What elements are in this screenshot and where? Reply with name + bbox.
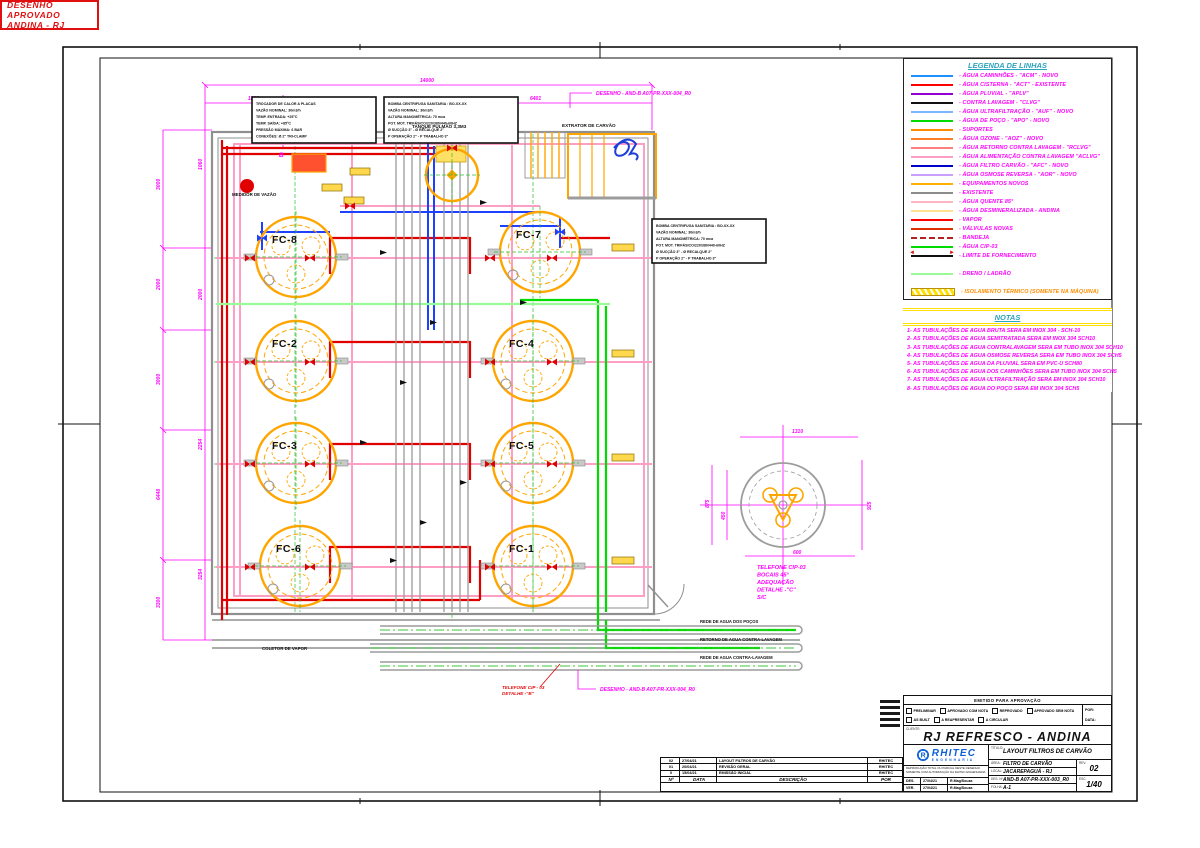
legend-line-swatch <box>911 255 953 257</box>
legend-item-label: - ÁGUA CIP-03 <box>959 244 998 250</box>
pipe-rack <box>396 140 468 612</box>
svg-text:CONEXÕES: Ø 2" TRI-CLAMP: CONEXÕES: Ø 2" TRI-CLAMP <box>256 134 307 139</box>
tank-label-fc3: FC-3 <box>272 440 297 452</box>
legend-line-swatch <box>911 228 953 230</box>
rev-date: 15/04/21 <box>680 771 717 776</box>
legend-line-swatch <box>911 201 953 203</box>
label-coletor: COLETOR DE VAPOR <box>262 646 308 651</box>
format-notes-decoration <box>880 700 900 730</box>
folha-label: FOLHA: <box>991 785 1003 789</box>
svg-text:R: R <box>920 753 925 760</box>
legend-item-label: - BANDEJA <box>959 235 989 241</box>
svg-text:VAZÃO NOMINAL: 30m3/h: VAZÃO NOMINAL: 30m3/h <box>388 108 433 113</box>
note-line: 1- AS TUBULAÇÕES DE AGUA BRUTA SERA EM I… <box>903 326 1112 334</box>
legend-line-swatch <box>911 210 953 212</box>
spec-box-b: BOMBA CENTRIFUGA SANITARIA : BO-XX-XX VA… <box>384 97 518 143</box>
legend-item-label: - ÁGUA PLUVIAL - "APLV" <box>959 91 1029 97</box>
data-label: DATA: <box>1085 718 1111 722</box>
legend-item: - VÁLVULAS NOVAS <box>904 224 1111 233</box>
legend-item-label: - ÁGUA QUENTE 85° <box>959 199 1013 205</box>
legend-line-swatch <box>911 84 953 86</box>
legend-item: - ÁGUA RETORNO CONTRA LAVAGEM - "RCLVG" <box>904 143 1111 152</box>
tank-label-fc5: FC-5 <box>509 440 534 452</box>
detail-note-4: DETALHE -"C" <box>757 588 796 594</box>
legend-line-swatch <box>911 192 953 194</box>
rev-description: EMISSÃO INICIAL <box>717 771 868 776</box>
dim-top-main: 14000 <box>420 78 434 84</box>
checkbox-icon[interactable] <box>934 717 940 723</box>
note-line: 5- AS TUBULAÇÕES DE AGUA DA PLUVIAL SERA… <box>903 359 1112 367</box>
svg-text:BOMBA CENTRIFUGA SANITARIA : B: BOMBA CENTRIFUGA SANITARIA : BO-XX-XX <box>388 102 467 106</box>
legend-item: - ÁGUA DE POÇO - "APO" - NOVO <box>904 116 1111 125</box>
label-pipe-3: REDE DE AGUA CONTRA-LAVAGEM <box>700 655 773 660</box>
svg-text:VAZÃO NOMINAL: 30m3/h: VAZÃO NOMINAL: 30m3/h <box>656 230 701 235</box>
svg-text:TEMP. ENTRADA: +25°C: TEMP. ENTRADA: +25°C <box>256 115 298 119</box>
legend-panel: LEGENDA DE LINHAS - ÁGUA CAMINHÕES - "AC… <box>903 58 1112 300</box>
legend-line-swatch <box>911 147 953 149</box>
north-arrow-scribble-icon <box>614 140 638 160</box>
legend-item-label: - ÁGUA DESMINERALIZADA - ANDINA <box>959 208 1060 214</box>
legend-line-swatch <box>911 237 953 239</box>
legend-item-label: - EQUIPAMENTOS NOVOS <box>959 181 1029 187</box>
legend-item: - ÁGUA ULTRAFILTRAÇÃO - "AUF" - NOVO <box>904 107 1111 116</box>
legend-item: - ÁGUA PLUVIAL - "APLV" <box>904 89 1111 98</box>
label-tanque-pulmao: TANQUE PULMÃO 3,3M3 <box>412 123 467 129</box>
area-value: FILTRO DE CARVÃO <box>1003 761 1052 767</box>
checkbox-icon[interactable] <box>906 708 912 714</box>
rhitec-logo: R RHITEC ENGENHARIA <box>904 745 988 766</box>
equipment-tags <box>322 168 634 564</box>
rev-by: RHITEC <box>868 764 902 769</box>
dim-detail-5: 600 <box>793 550 802 556</box>
dim-detail-2: 875 <box>705 499 711 508</box>
notes-panel: NOTAS 1- AS TUBULAÇÕES DE AGUA BRUTA SER… <box>903 308 1112 392</box>
note-line: 3- AS TUBULAÇÕES DE AGUA CONTRALAVAGEM S… <box>903 342 1112 350</box>
checkbox-as-built[interactable]: AS BUILT <box>906 717 930 723</box>
legend-item: - ÁGUA CAMINHÕES - "ACM" - NOVO <box>904 71 1111 80</box>
legend-item: - ÁGUA OZONE - "AOZ" - NOVO <box>904 134 1111 143</box>
rev-label: REV. <box>1079 761 1086 765</box>
legend-line-swatch <box>911 219 953 221</box>
legend-item: - ÁGUA CIP-03 <box>904 242 1111 251</box>
dim-top-3: 6401 <box>530 96 541 102</box>
sign-row-ver: VER. 27/04/21 R.Mag/Souza <box>904 785 988 791</box>
rev-header-by: POR <box>868 777 902 782</box>
sheet-number: A-1 <box>1003 785 1011 791</box>
legend-line-swatch <box>911 246 953 248</box>
label-telefone-2: DETALHE -"B" <box>502 691 535 696</box>
tank-label-fc8: FC-8 <box>272 234 297 246</box>
tank-label-fc4: FC-4 <box>509 338 534 350</box>
legend-item: - VAPOR <box>904 215 1111 224</box>
legend-item: - ÁGUA OSMOSE REVERSA - "AOR" - NOVO <box>904 170 1111 179</box>
legend-item-label: - ISOLAMENTO TÉRMICO (SOMENTE NA MÁQUINA… <box>961 289 1099 295</box>
rev-by: RHITEC <box>868 771 902 776</box>
sign-row-des: DES. 27/04/21 R.Mag/Souza <box>904 778 988 785</box>
area-label: ÁREA: <box>991 761 1001 765</box>
note-line: 7- AS TUBULAÇÕES DE AGUA ULTRAFILTRAÇÃO … <box>903 375 1112 383</box>
note-line: 8- AS TUBULAÇÕES DE AGUA DO POÇO SERA EM… <box>903 383 1112 391</box>
rhitec-gear-icon: R <box>916 748 930 762</box>
tank-label-fc1: FC-1 <box>509 543 534 555</box>
dim-ileft-2: 2000 <box>198 289 204 301</box>
spec-box-a: TROCADOR DE CALOR A PLACAS VAZÃO NOMINAL… <box>252 97 376 143</box>
legend-line-swatch <box>911 165 953 167</box>
client-name: RJ REFRESCO - ANDINA <box>923 730 1091 744</box>
legend-item: - CONTRA LAVAGEM - "CLVG" <box>904 98 1111 107</box>
legend-line-swatch <box>911 273 953 275</box>
dim-left-3: 3000 <box>156 374 162 385</box>
checkbox-preliminar[interactable]: PRELIMINAR <box>906 708 936 714</box>
checkbox-a-reapresentar[interactable]: A REAPRESENTAR <box>934 717 974 723</box>
rev-no: 02 <box>661 758 680 763</box>
label-desenho-top: DESENHO - AND-B A07-PR-XXX-004_R0 <box>596 91 691 97</box>
checkbox-icon[interactable] <box>992 708 998 714</box>
por-label: POR: <box>1085 708 1111 712</box>
rev-date: 27/04/21 <box>680 758 717 763</box>
legend-line-swatch <box>911 111 953 113</box>
legend-line-swatch <box>911 138 953 140</box>
bottom-leaders <box>540 664 596 689</box>
legend-item-label: - ÁGUA OSMOSE REVERSA - "AOR" - NOVO <box>959 172 1077 178</box>
dim-ileft-1: 1060 <box>198 159 204 170</box>
label-pipe-2: RETORNO DE AGUA CONTRA-LAVAGEM <box>700 637 782 642</box>
rev-by: RHITEC <box>868 758 902 763</box>
svg-text:TEMP. SAÍDA: +85°C: TEMP. SAÍDA: +85°C <box>256 121 291 126</box>
titulo-label: TÍTULO: <box>991 746 1003 750</box>
revision-empty-row <box>661 783 902 791</box>
desnum-label: DES. Nº: <box>991 777 1004 781</box>
checkbox-aprovado-sem-nota[interactable]: APROVADO SEM NOTA <box>1027 708 1075 714</box>
title-block: EMITIDO PARA APROVAÇÃO PRELIMINAR APROVA… <box>903 695 1112 792</box>
dim-left-5: 3300 <box>156 597 162 608</box>
note-line: 2- AS TUBULAÇÕES DE AGUA SEMITRATADA SER… <box>903 334 1112 342</box>
legend-item: - LIMITE DE FORNECIMENTO <box>904 251 1111 260</box>
dim-detail-1: 1310 <box>792 429 803 435</box>
svg-text:P OPERAÇÃO 2" - P TRABALHO 3": P OPERAÇÃO 2" - P TRABALHO 3" <box>656 256 716 261</box>
legend-item-label: - ÁGUA OZONE - "AOZ" - NOVO <box>959 136 1043 142</box>
cliente-label: CLIENTE: <box>906 727 920 731</box>
svg-text:PRESSÃO MÁXIMA: 6 BAR: PRESSÃO MÁXIMA: 6 BAR <box>256 127 303 132</box>
legend-line-swatch <box>911 288 955 296</box>
legend-item: - ÁGUA DESMINERALIZADA - ANDINA <box>904 206 1111 215</box>
svg-text:BOMBA CENTRIFUGA SANITARIA : B: BOMBA CENTRIFUGA SANITARIA : BO-XX-XX <box>656 224 735 228</box>
svg-text:TROCADOR DE CALOR A PLACAS: TROCADOR DE CALOR A PLACAS <box>256 102 316 106</box>
titleblock-header: EMITIDO PARA APROVAÇÃO <box>904 696 1111 705</box>
dim-detail-3: 450 <box>721 511 727 521</box>
legend-line-swatch <box>911 102 953 104</box>
legend-item-label: - VÁLVULAS NOVAS <box>959 226 1013 232</box>
note-line: 6- AS TUBULAÇÕES DE AGUA DOS CAMINHÕES S… <box>903 367 1112 375</box>
local-label: LOCAL: <box>991 769 1002 773</box>
svg-text:POT. MOT. TRIFÁSICO/220/380/44: POT. MOT. TRIFÁSICO/220/380/440-60HZ <box>656 243 726 248</box>
scale-value: 1/40 <box>1086 780 1102 789</box>
legend-line-swatch <box>911 174 953 176</box>
esc-label: ESC. <box>1079 777 1086 781</box>
revision-table: 02 27/04/21 LAYOUT FILTROS DE CARVÃO RHI… <box>660 757 903 792</box>
legend-item-label: - EXISTENTE <box>959 190 993 196</box>
svg-text:ALTURA MANOMÉTRICA: 70 mca: ALTURA MANOMÉTRICA: 70 mca <box>388 114 446 119</box>
svg-text:ALTURA MANOMÉTRICA: 70 mca: ALTURA MANOMÉTRICA: 70 mca <box>656 236 714 241</box>
checkbox-a-circular[interactable]: A CIRCULAR <box>978 717 1008 723</box>
copyright-disclaimer: REPRODUÇÃO TOTAL OU PARCIAL DESTE DESENH… <box>904 766 988 778</box>
dim-left-4: 6448 <box>156 489 162 500</box>
legend-item: - SUPORTES <box>904 125 1111 134</box>
rev-no: 01 <box>661 764 680 769</box>
rev-header-desc: DESCRIÇÃO <box>717 777 868 782</box>
legend-item-label: - ÁGUA CAMINHÕES - "ACM" - NOVO <box>959 73 1058 79</box>
legend-item: - ÁGUA ALIMENTAÇÃO CONTRA LAVAGEM "ACLVG… <box>904 152 1111 161</box>
legend-item-label: - DRENO / LADRÃO <box>959 271 1011 277</box>
legend-line-swatch <box>911 129 953 131</box>
detail-note-2: BOCAIS 45° <box>757 573 790 579</box>
note-line: 4- AS TUBULAÇÕES DE AGUA OSMOSE REVERSA … <box>903 351 1112 359</box>
legend-line-swatch <box>911 183 953 185</box>
drawing-title: LAYOUT FILTROS DE CARVÃO <box>1003 749 1092 755</box>
legend-line-swatch <box>911 75 953 77</box>
legend-item-label: - VAPOR <box>959 217 982 223</box>
legend-item: - EQUIPAMENTOS NOVOS <box>904 179 1111 188</box>
notes-title: NOTAS <box>903 311 1112 323</box>
legend-item-label: - ÁGUA CISTERNA - "ACT" - EXISTENTE <box>959 82 1066 88</box>
dim-left-2: 2000 <box>156 279 162 291</box>
legend-line-swatch <box>911 120 953 122</box>
local-value: JACAREPAGUÁ - RJ <box>1003 769 1052 775</box>
checkbox-icon[interactable] <box>940 708 946 714</box>
svg-text:Ø SUCÇÃO 3" - Ø RECALQUE 2": Ø SUCÇÃO 3" - Ø RECALQUE 2" <box>656 249 712 254</box>
legend-item-label: - CONTRA LAVAGEM - "CLVG" <box>959 100 1040 106</box>
checkbox-icon[interactable] <box>978 717 984 723</box>
rev-description: LAYOUT FILTROS DE CARVÃO <box>717 758 868 763</box>
legend-title: LEGENDA DE LINHAS <box>904 59 1111 71</box>
legend-line-swatch <box>911 93 953 95</box>
legend-item-label: - ÁGUA ULTRAFILTRAÇÃO - "AUF" - NOVO <box>959 109 1073 115</box>
legend-item: - ÁGUA QUENTE 85° <box>904 197 1111 206</box>
detail-note-1: TELEFONE CIP-03 <box>757 565 807 571</box>
valves-red <box>245 145 557 571</box>
rev-value: 02 <box>1090 764 1099 773</box>
rev-header-no: Nº <box>661 777 680 782</box>
spec-box-c: BOMBA CENTRIFUGA SANITARIA : BO-XX-XX VA… <box>652 219 766 263</box>
rev-header-date: DATA <box>680 777 717 782</box>
label-medidor: MEDIDOR DE VAZÃO <box>232 192 277 197</box>
tank-label-fc7: FC-7 <box>516 229 541 241</box>
rev-date: 20/04/21 <box>680 764 717 769</box>
checkbox-icon[interactable] <box>1027 708 1033 714</box>
legend-item-label: - SUPORTES <box>959 127 993 133</box>
dim-ileft-3: 2254 <box>198 439 204 451</box>
svg-text:P OPERAÇÃO 2" - P TRABALHO 3": P OPERAÇÃO 2" - P TRABALHO 3" <box>388 134 448 139</box>
legend-item: - DRENO / LADRÃO <box>904 269 1111 278</box>
label-desenho-bottom: DESENHO - AND-B A07-PR-XXX-004_R0 <box>600 687 695 693</box>
legend-item-label: - ÁGUA FILTRO CARVÃO - "AFC" - NOVO <box>959 163 1069 169</box>
legend-item: - ÁGUA FILTRO CARVÃO - "AFC" - NOVO <box>904 161 1111 170</box>
label-pipe-1: REDE DE AGUA DOS POÇOS <box>700 619 759 624</box>
legend-line-swatch <box>911 156 953 158</box>
legend-item: - ÁGUA CISTERNA - "ACT" - EXISTENTE <box>904 80 1111 89</box>
logo-subtitle: ENGENHARIA <box>932 758 976 762</box>
legend-item-label: - ÁGUA RETORNO CONTRA LAVAGEM - "RCLVG" <box>959 145 1091 151</box>
checkbox-reprovado[interactable]: REPROVADO <box>992 708 1022 714</box>
label-extrator: EXTRATOR DE CARVÃO <box>562 122 616 128</box>
checkbox-aprovado-com-nota[interactable]: APROVADO COM NOTA <box>940 708 988 714</box>
label-telefone-1: TELEFONE CIP - 03 <box>502 685 545 690</box>
legend-item-label: - LIMITE DE FORNECIMENTO <box>959 253 1036 259</box>
drawing-number: AND-B A07-PR-XXX-003_R0 <box>1003 777 1069 783</box>
svg-text:VAZÃO NOMINAL: 30m3/h: VAZÃO NOMINAL: 30m3/h <box>256 108 301 113</box>
legend-item: - ISOLAMENTO TÉRMICO (SOMENTE NA MÁQUINA… <box>904 287 1111 296</box>
legend-item-label: - ÁGUA ALIMENTAÇÃO CONTRA LAVAGEM "ACLVG… <box>959 154 1100 160</box>
logo-name: RHITEC <box>932 749 976 758</box>
legend-item: - EXISTENTE <box>904 188 1111 197</box>
dim-left-1: 3000 <box>156 179 162 190</box>
label-ref-b: B <box>279 152 284 159</box>
legend-item: - BANDEJA <box>904 233 1111 242</box>
rev-no: 0 <box>661 771 680 776</box>
checkbox-icon[interactable] <box>906 717 912 723</box>
tank-label-fc6: FC-6 <box>276 543 301 555</box>
dim-detail-4: 925 <box>867 501 873 510</box>
detail-note-5: S/C <box>757 595 767 601</box>
detail-note-3: ADEQUAÇÃO <box>756 579 794 586</box>
rev-description: REVISÃO GERAL <box>717 764 868 769</box>
dim-ileft-4: 3254 <box>198 569 204 580</box>
legend-item-label: - ÁGUA DE POÇO - "APO" - NOVO <box>959 118 1049 124</box>
tank-label-fc2: FC-2 <box>272 338 297 350</box>
